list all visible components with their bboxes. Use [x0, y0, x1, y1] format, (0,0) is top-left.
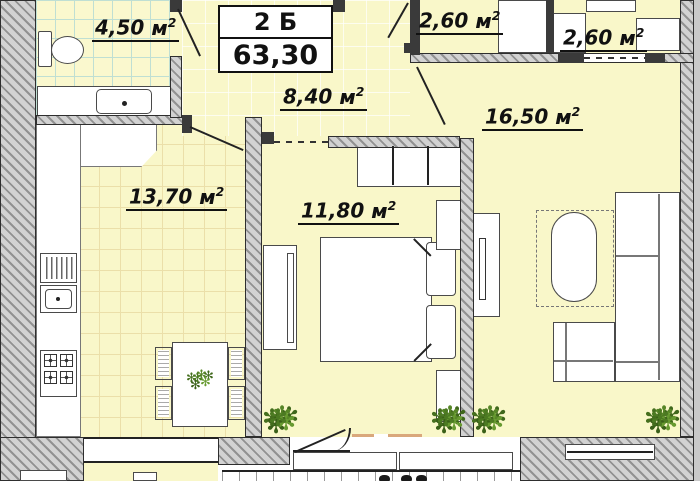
burner-icon [44, 371, 57, 384]
chair [228, 347, 245, 380]
lower-balcony-panel [293, 452, 397, 470]
area-value: 4,50 [95, 16, 144, 40]
wall-bedroom-top [328, 136, 460, 148]
balcony-door-jamb-left [558, 53, 584, 63]
area-unit: м [199, 185, 215, 209]
balcony-door-threshold [584, 57, 645, 59]
clipped-area-label [401, 475, 412, 481]
lower-balcony-tiles [222, 470, 520, 481]
area-label-balcony-right: 2,60м2 [560, 25, 647, 52]
wardrobe-divider [392, 146, 394, 185]
bedroom-door-jamb [262, 132, 274, 144]
sofa-cushion-line [554, 360, 613, 362]
area-value: 8,40 [283, 85, 332, 109]
area-unit: м [339, 85, 355, 109]
lower-balcony-box [20, 470, 67, 481]
area-unit: м [151, 16, 167, 40]
outside-strip [694, 0, 700, 481]
bedroom-door-threshold [274, 141, 328, 143]
area-label-balcony-left: 2,60м2 [416, 8, 503, 35]
pillow [426, 305, 456, 359]
area-unit-sup: 2 [356, 84, 365, 99]
wall-left-outer [0, 0, 36, 481]
bedroom-window [352, 437, 422, 452]
chair [228, 386, 245, 420]
wall-bottom-middle [218, 437, 290, 465]
sofa-cushion-line [616, 255, 658, 257]
area-unit: м [555, 105, 571, 129]
area-label-bedroom: 11,80м2 [298, 198, 399, 225]
area-value: 11,80 [301, 199, 364, 223]
burner-icon [44, 354, 57, 367]
living-window-line [567, 451, 653, 453]
area-label-hallway: 8,40м2 [280, 84, 367, 111]
wall-bathroom-right [170, 56, 182, 118]
wardrobe [357, 144, 463, 187]
toilet-tank [38, 31, 52, 67]
wall-kitchen-bedroom [245, 117, 262, 437]
burner-icon [60, 354, 73, 367]
entrance-jamb-left [333, 0, 345, 12]
area-value: 2,60 [419, 9, 468, 33]
area-unit-sup: 2 [572, 104, 581, 119]
sofa-back-line [658, 194, 660, 380]
faucet-icon [122, 101, 127, 106]
lower-balcony-panel [399, 452, 513, 470]
burner-icon [60, 371, 73, 384]
balcony-door-jamb-right [645, 53, 665, 63]
plant-icon: ✻ [476, 406, 496, 430]
area-label-kitchen: 13,70м2 [126, 184, 227, 211]
clipped-area-label [416, 475, 427, 481]
tv-stand [472, 213, 500, 317]
coffee-table [551, 212, 597, 302]
area-unit-sup: 2 [492, 8, 501, 23]
sofa-bottom-section [553, 322, 615, 382]
pillow [426, 242, 456, 296]
bed [320, 237, 432, 362]
area-unit-sup: 2 [168, 15, 177, 30]
bathroom-door-jamb-top [170, 0, 182, 12]
table-plant-icon: ✻ [192, 372, 203, 385]
plant-icon: ✻ [268, 406, 288, 430]
dish-rack [40, 253, 77, 283]
nightstand [436, 200, 462, 250]
wardrobe-divider [427, 146, 429, 185]
total-area-value: 63,30 [220, 39, 331, 73]
plant-icon: ✻ [436, 406, 456, 430]
lower-balcony-box [133, 472, 157, 481]
chair [155, 386, 172, 420]
area-value: 2,60 [563, 26, 612, 50]
sofa-armrest-line [565, 323, 567, 381]
area-unit: м [619, 26, 635, 50]
wall-right-outer [680, 0, 694, 437]
wall-bedroom-living [460, 138, 474, 437]
chair [155, 347, 172, 380]
kitchen-entry-jamb [182, 115, 192, 133]
entry-jamb [404, 43, 412, 53]
window-sill-gap [374, 434, 388, 439]
area-value: 16,50 [485, 105, 548, 129]
area-label-bathroom: 4,50м2 [92, 15, 179, 42]
dresser-handle [287, 253, 294, 343]
plant-icon: ✻ [650, 406, 670, 430]
area-unit-sup: 2 [636, 25, 645, 40]
title-block: 2 Б 63,30 [218, 5, 333, 73]
apartment-type-label: 2 Б [220, 7, 331, 39]
area-unit-sup: 2 [388, 198, 397, 213]
floor-plan: ✻ ✻ ✻ ✻ ✻ 2 Б 63,30 [0, 0, 700, 481]
kitchen-window [84, 437, 218, 463]
toilet-bowl [51, 36, 84, 64]
balcony-cabinet [498, 0, 547, 53]
wall-balcony-divider [546, 0, 554, 53]
sofa-cushion-line [616, 361, 658, 363]
area-unit: м [371, 199, 387, 223]
area-label-living-room: 16,50м2 [482, 104, 583, 131]
area-unit-sup: 2 [216, 184, 225, 199]
wall-bathroom-bottom [36, 115, 188, 125]
clipped-area-label [379, 475, 390, 481]
sofa-right-section [615, 192, 680, 382]
tv-icon [479, 238, 486, 300]
area-value: 13,70 [129, 185, 192, 209]
drain-icon [56, 297, 60, 301]
area-unit: м [475, 9, 491, 33]
balcony-cabinet [586, 0, 636, 12]
